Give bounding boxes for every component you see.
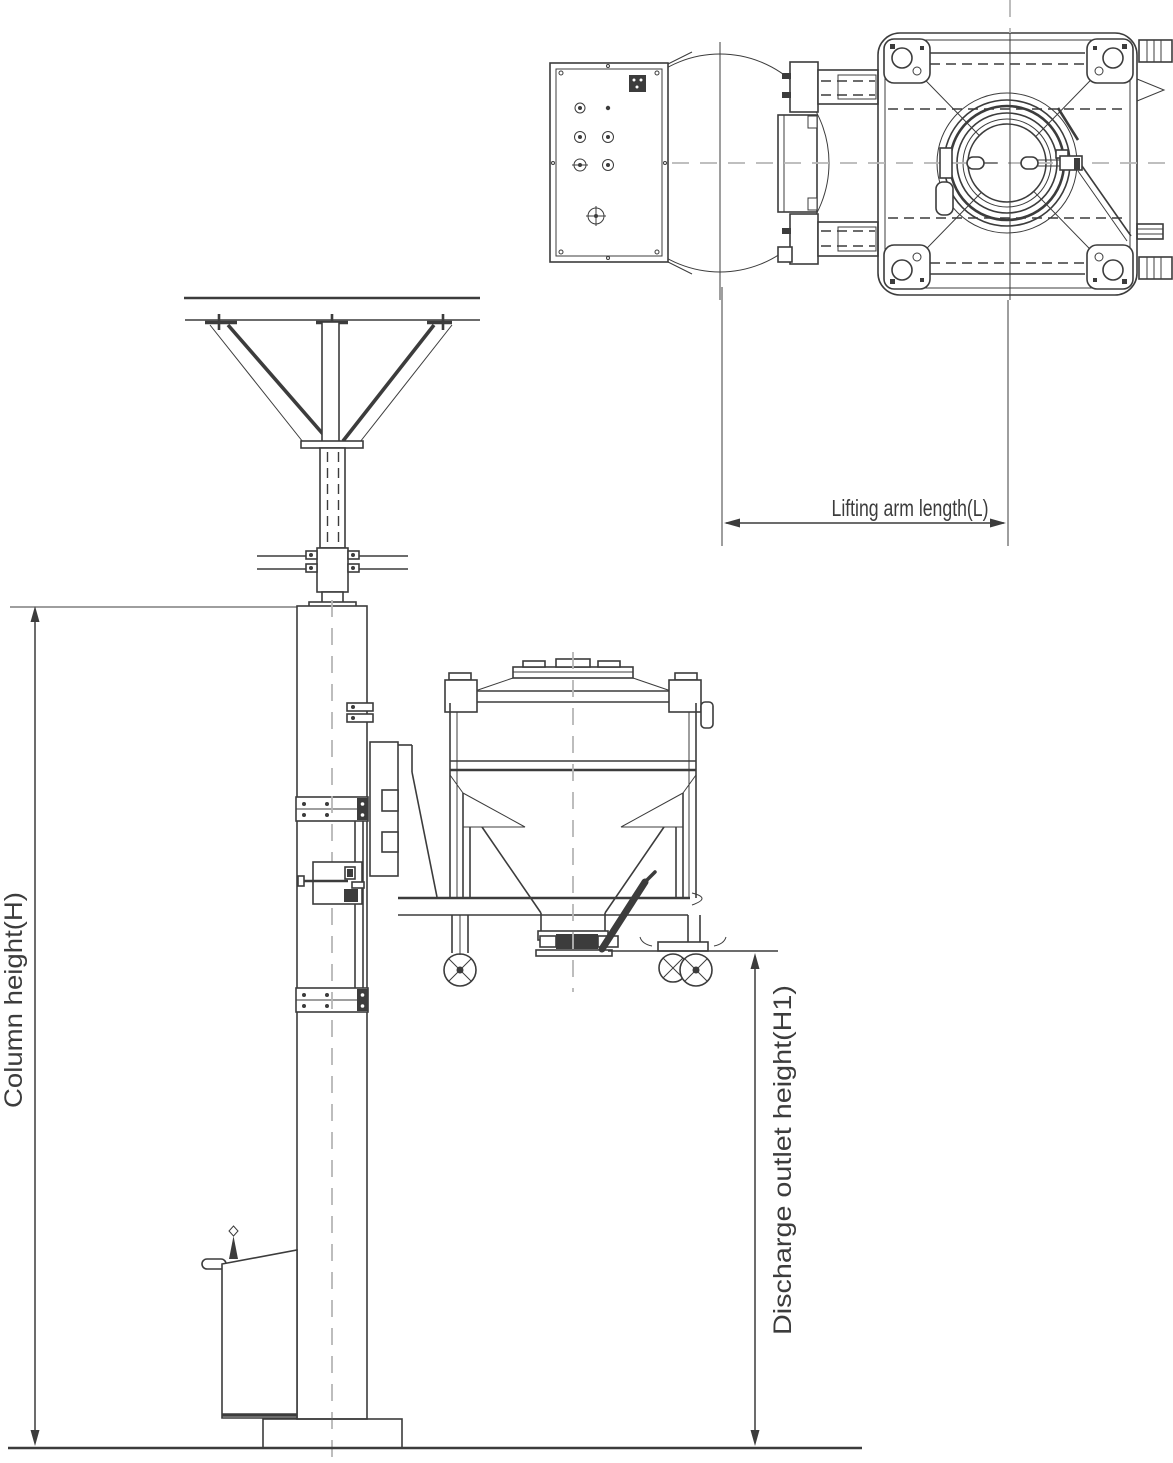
corner-pad-top-right (1087, 39, 1133, 83)
corner-pad-top-left (884, 39, 930, 83)
panel-display (629, 75, 646, 92)
dimension-lifting-arm-length: Lifting arm length(L) (722, 287, 1008, 546)
control-panel (550, 52, 692, 274)
front-view (8, 298, 862, 1461)
frame-end-hook (692, 893, 702, 905)
corner-pad-bottom-left (884, 245, 930, 289)
top-support-braces (205, 314, 452, 448)
ibc-bin (444, 652, 726, 992)
lifting-carriage (370, 742, 437, 897)
column-height-label: Column height(H) (0, 892, 28, 1108)
lift-arm-bottom-rail (778, 214, 878, 264)
discharge-outlet-height-label: Discharge outlet height(H1) (769, 985, 797, 1335)
upper-shaft (257, 448, 408, 607)
corner-pad-bottom-right (1087, 245, 1133, 289)
lifting-machine-drawing: Lifting arm length(L) (0, 0, 1173, 1463)
bin-left-caster (444, 915, 476, 986)
technical-drawing-page: Lifting arm length(L) (0, 0, 1173, 1463)
lift-arm-top-rail (782, 62, 878, 112)
top-view (550, 0, 1172, 300)
base-console (202, 1226, 297, 1418)
dimension-discharge-height: Discharge outlet height(H1) (751, 953, 798, 1446)
console-joystick (229, 1236, 238, 1259)
frame-right-casters (1137, 40, 1172, 279)
lifting-arm-length-label: Lifting arm length(L) (832, 495, 989, 521)
butterfly-valve (556, 934, 598, 949)
